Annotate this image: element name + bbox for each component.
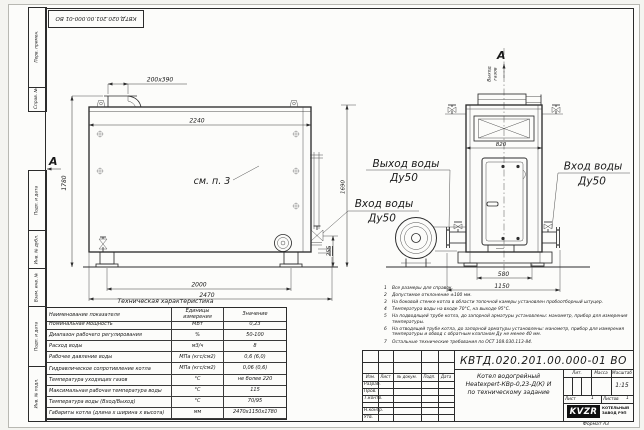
row-name: Гидравлическое сопротивление котла bbox=[47, 363, 172, 374]
tb-lit-label: Лит. bbox=[563, 370, 591, 375]
inspection-plug-icons bbox=[97, 131, 300, 210]
row-value: 50-100 bbox=[224, 330, 286, 341]
lifting-lug-left bbox=[97, 101, 105, 108]
note-number: 7 bbox=[384, 340, 392, 346]
tb-row-nkontr: Н.контр. bbox=[364, 408, 383, 413]
front-leg-left bbox=[100, 252, 114, 264]
dim-feet-span-side: 580 bbox=[498, 271, 510, 278]
note-text: Температура воды на входе 70°С, на выход… bbox=[392, 307, 632, 313]
note-number: 4 bbox=[384, 307, 392, 313]
row-value: 8 bbox=[224, 341, 286, 352]
note-number: 2 bbox=[384, 293, 392, 299]
tb-row-razrab: Разраб. bbox=[364, 382, 381, 387]
tb-line bbox=[363, 402, 454, 403]
row-unit: мм bbox=[172, 408, 224, 419]
note-3: 3На боковой стенке котла в области топоч… bbox=[384, 300, 632, 306]
tb-mass-label: Масса bbox=[591, 370, 611, 375]
water-inlet-flange bbox=[542, 222, 560, 248]
tb-line bbox=[363, 388, 454, 389]
dim-width-top: 2240 bbox=[189, 118, 204, 125]
see-ref-callout: см. п. 3 bbox=[194, 166, 259, 187]
note-text: На отводящей трубе котла, до запорной ар… bbox=[392, 327, 632, 338]
boiler-drawing-page: { "frame": { "strip_top": ["Перв. примен… bbox=[0, 0, 644, 430]
row-name: Расход воды bbox=[47, 341, 172, 352]
gas-outlet-line1: Выход bbox=[487, 66, 493, 81]
row-unit: МПа (кгс/см2) bbox=[172, 352, 224, 363]
tb-scale-value: 1:15 bbox=[611, 382, 633, 389]
row-name: Рабочее давление воды bbox=[47, 352, 172, 363]
row-name: Диапазон рабочего регулирования bbox=[47, 330, 172, 341]
gas-outlet-label: Выход газов bbox=[487, 66, 499, 81]
furnace-door bbox=[482, 158, 527, 245]
row-name: Габариты котла (длина х ширина х высота) bbox=[47, 408, 172, 419]
row-value: 0,6 (6,0) bbox=[224, 352, 286, 363]
water-outlet-label: Выход воды bbox=[373, 158, 440, 170]
row-value: 115 bbox=[224, 386, 286, 397]
door-handle-icon bbox=[487, 202, 498, 206]
format-label: Формат А3 bbox=[560, 422, 632, 427]
dim-feet-span-front: 2000 bbox=[191, 282, 206, 289]
safety-valve-right-icon bbox=[542, 105, 563, 114]
side-dimensions: 820 580 1150 bbox=[447, 142, 560, 292]
product-line3: по техническому задание bbox=[467, 389, 549, 396]
tb-line bbox=[363, 414, 454, 415]
note-number: 1 bbox=[384, 286, 392, 292]
title-block: Изм. Лист № докум. Подп. Дата Разраб. Пр… bbox=[362, 350, 634, 422]
note-6: 6На отводящей трубе котла, до запорной а… bbox=[384, 327, 632, 338]
dim-inlet-height: 255 bbox=[327, 245, 333, 256]
water-inlet-front-dn: Ду50 bbox=[367, 213, 396, 225]
row-unit: м3/ч bbox=[172, 341, 224, 352]
note-1: 1Все размеры для справок. bbox=[384, 286, 632, 292]
row-name: Температура воды (Вход/Выход) bbox=[47, 397, 172, 408]
tb-sheets-label: Листов bbox=[603, 396, 619, 401]
tb-sheet-value: 1 bbox=[591, 396, 594, 401]
tb-doc-number: КВТД.020.201.00.000-01 ВО bbox=[454, 353, 633, 369]
tb-line bbox=[601, 395, 602, 403]
tb-line bbox=[563, 377, 633, 378]
base-frame bbox=[458, 252, 552, 266]
section-letter-side: А bbox=[496, 49, 506, 62]
note-text: Все размеры для справок. bbox=[392, 286, 632, 292]
row-value: 0,06 (0,6) bbox=[224, 363, 286, 374]
dim-height: 1780 bbox=[61, 175, 68, 190]
water-outlet-dn: Ду50 bbox=[389, 172, 418, 184]
tb-row-tkontr: Т.контр. bbox=[364, 396, 383, 401]
pipe-labels: Выход воды Ду50 Вход воды Ду50 Вход воды… bbox=[323, 158, 630, 233]
tb-col-izm: Изм. bbox=[363, 374, 378, 379]
front-leg-right bbox=[284, 252, 298, 264]
note-7: 7Остальные технические требования по ОСТ… bbox=[384, 340, 632, 346]
note-2: 2Допустимое отклонение ±100 мм. bbox=[384, 293, 632, 299]
gas-collar bbox=[478, 94, 541, 105]
tb-line bbox=[581, 377, 582, 395]
tb-col-data: Дата bbox=[438, 374, 454, 379]
row-value: 2470х1150х1780 bbox=[224, 408, 286, 419]
tb-product-name: Котел водогрейный Heatexpert-КВр-0,23-Д(… bbox=[454, 373, 563, 399]
note-text: Допустимое отклонение ±100 мм. bbox=[392, 293, 632, 299]
note-text: На подводящей трубе котла, до запорной а… bbox=[392, 314, 632, 325]
technical-notes: 1Все размеры для справок. 2Допустимое от… bbox=[384, 286, 632, 347]
row-unit: °С bbox=[172, 397, 224, 408]
dim-width-side: 820 bbox=[496, 142, 507, 148]
tb-line bbox=[572, 377, 573, 395]
company-name: КОТЕЛЬНЫЙ ЗАВОД РЭП bbox=[602, 406, 633, 416]
dim-total-height: 1690 bbox=[341, 180, 347, 194]
water-outlet-flange bbox=[447, 222, 467, 248]
note-4: 4Температура воды на входе 70°С, на выхо… bbox=[384, 307, 632, 313]
tb-sheet-label: Лист bbox=[565, 396, 576, 401]
water-inlet-side-label: Вход воды bbox=[564, 161, 623, 173]
section-letter-front: А bbox=[48, 155, 58, 168]
tb-col-list: Лист bbox=[378, 374, 393, 379]
tb-col-doc: № докум. bbox=[393, 374, 421, 379]
row-unit: МПа (кгс/см2) bbox=[172, 363, 224, 374]
drain-valve-icon bbox=[99, 237, 107, 252]
row-unit: МВт bbox=[172, 319, 224, 330]
row-unit: % bbox=[172, 330, 224, 341]
tb-col-podp: Подп. bbox=[421, 374, 438, 379]
note-number: 3 bbox=[384, 300, 392, 306]
row-value: 70/95 bbox=[224, 397, 286, 408]
row-name: Температура уходящих газов bbox=[47, 375, 172, 386]
product-line2: Heatexpert-КВр-0,23-Д(К) И bbox=[466, 381, 552, 388]
kvzr-logo: KVZR bbox=[567, 405, 600, 418]
water-inlet-side-dn: Ду50 bbox=[577, 176, 606, 188]
row-unit: °С bbox=[172, 375, 224, 386]
see-ref-text: см. п. 3 bbox=[194, 176, 231, 187]
company-line2: ЗАВОД РЭП bbox=[602, 411, 626, 415]
note-number: 6 bbox=[384, 327, 392, 338]
tech-table: Наименование показателя Единицы измерени… bbox=[46, 307, 287, 420]
row-value: не более 220 bbox=[224, 375, 286, 386]
row-name: Максимальная рабочая температура воды bbox=[47, 386, 172, 397]
row-name: Номинальная мощность bbox=[47, 319, 172, 330]
note-number: 5 bbox=[384, 314, 392, 325]
tb-sheets-value: 1 bbox=[626, 396, 629, 401]
company-line1: КОТЕЛЬНЫЙ bbox=[602, 406, 629, 410]
section-mark-front: А bbox=[47, 155, 61, 169]
tb-row-prov: Пров. bbox=[364, 389, 377, 394]
tb-row-utv: Утв. bbox=[364, 415, 373, 420]
tb-line bbox=[363, 362, 454, 363]
pump-flange-icon bbox=[275, 235, 292, 252]
note-text: На боковой стенке котла в области топочн… bbox=[392, 300, 632, 306]
tech-table-title: Техническая характеристика bbox=[46, 298, 285, 305]
note-5: 5На подводящей трубе котла, до запорной … bbox=[384, 314, 632, 325]
note-text: Остальные технические требования по ОСТ … bbox=[392, 340, 632, 346]
inlet-pipe-valve bbox=[310, 152, 333, 256]
flue-duct bbox=[104, 96, 141, 107]
lifting-lug-right bbox=[290, 101, 298, 108]
safety-valve-left-icon bbox=[445, 105, 466, 114]
water-inlet-front-label: Вход воды bbox=[355, 198, 414, 210]
row-value: 0,23 bbox=[224, 319, 286, 330]
row-unit: °С bbox=[172, 386, 224, 397]
gas-outlet-line2: газов bbox=[494, 67, 499, 80]
tb-scale-label: Масштаб bbox=[611, 370, 633, 375]
front-view: 200х390 2240 1780 2000 2470 255 1690 А bbox=[47, 77, 356, 302]
tb-line bbox=[563, 403, 633, 404]
dim-duct: 200х390 bbox=[147, 77, 174, 84]
product-line1: Котел водогрейный bbox=[477, 373, 540, 380]
